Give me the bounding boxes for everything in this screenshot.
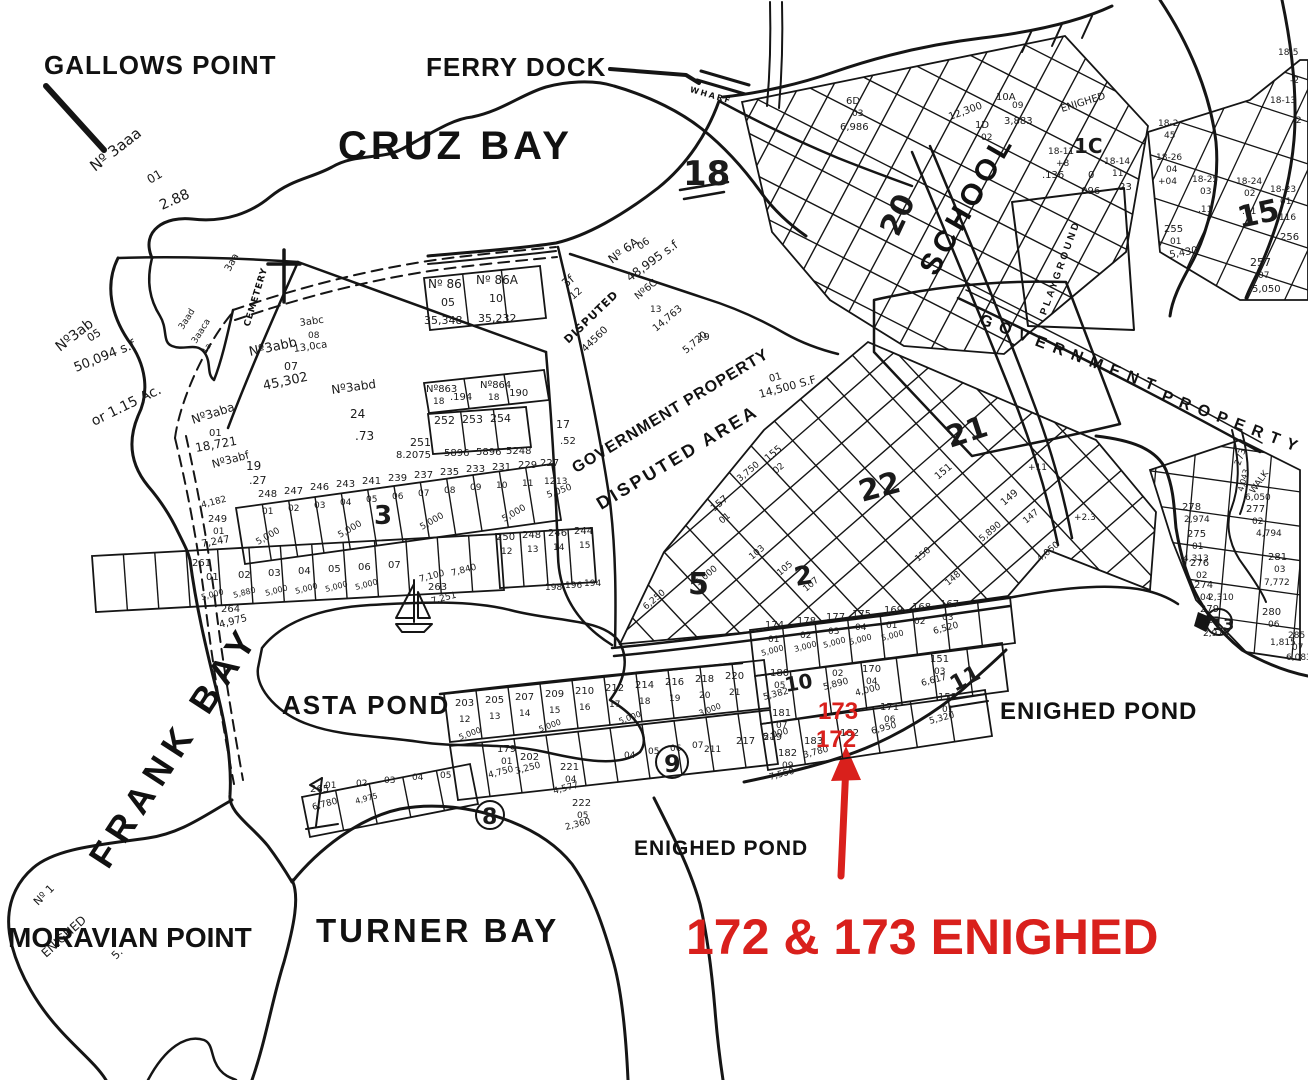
parcel-label: 205 [485, 695, 504, 706]
parcel-label: 194 [584, 579, 601, 589]
parcel-label: 281 [1268, 552, 1287, 563]
parcel-label: 11 [1112, 169, 1123, 179]
parcel-label: 3aa [223, 252, 241, 274]
parcel-label: 216 [665, 677, 684, 688]
parcel-label: 03 [384, 776, 395, 786]
parcel-label: 210 [575, 686, 594, 697]
parcel-label: 5,000 [354, 577, 378, 592]
parcel-label: 170 [862, 664, 881, 675]
parcel-label: 01 [1170, 237, 1181, 247]
district-number: 10 [783, 668, 815, 696]
parcel-label: 18 [433, 397, 445, 407]
cadastral-map: Nº 3aaa012.883aa3aad3aaca1a.Nº3ab0550,09… [0, 0, 1308, 1080]
annotation-172-173-enighed: 172 & 173 ENIGHED [686, 912, 1158, 962]
parcel-label: 17 [556, 418, 570, 431]
parcel-label: 17 [609, 700, 620, 710]
parcel-label: or 1.15 Ac. [89, 382, 164, 430]
parcel-label: 01 [206, 572, 219, 583]
parcel-label: 167 [940, 599, 959, 610]
parcel-label: 09 [470, 483, 482, 493]
parcel-label: 04 [624, 751, 636, 761]
parcel-label: 01 [1192, 542, 1203, 552]
parcel-label: 14 [519, 709, 531, 719]
parcel-label: 02 [914, 617, 925, 627]
parcel-label: 148 [944, 569, 964, 588]
parcel-label: 5896 [476, 447, 501, 458]
parcel-label: 182 [778, 748, 797, 759]
label-turner-bay: TURNER BAY [316, 914, 559, 947]
parcel-label: 01 [262, 507, 273, 517]
label-moravian-point: MORAVIAN POINT [8, 924, 252, 952]
parcel-label: 08 [308, 331, 320, 341]
parcel-label: 10 [496, 481, 508, 491]
parcel-label: 12 [544, 477, 555, 487]
parcel-label: 151 [930, 654, 949, 665]
parcel-label: Nº 1 [31, 882, 57, 908]
parcel-label: 7,772 [1264, 578, 1290, 588]
parcel-label: 203 [455, 698, 474, 709]
parcel-label: 02 [800, 631, 811, 641]
parcel-label: 16 [579, 703, 591, 713]
parcel-label: 07 [1292, 643, 1303, 653]
parcel-label: 45 [1164, 131, 1175, 141]
parcel-label: 2,974 [1184, 515, 1210, 525]
parcel-label: 244 [574, 526, 593, 537]
parcel-label: 5,000 [880, 628, 904, 643]
parcel-172-highlight: 172 [816, 728, 856, 752]
parcel-label: 7,247 [201, 534, 231, 550]
parcel-label: 13 [527, 545, 538, 555]
parcel-label: 04 [1166, 165, 1178, 175]
parcel-label: 277 [1246, 504, 1265, 515]
parcel-label: 03 [268, 568, 281, 579]
parcel-label: 276 [1190, 558, 1209, 569]
parcel-label: 179 [497, 744, 516, 755]
parcel-label: +04 [1158, 177, 1177, 187]
parcel-label: 06 [358, 562, 371, 573]
parcel-label: 3,750 [736, 460, 762, 484]
parcel-label: Nº3abb [248, 335, 299, 360]
parcel-label: 6,617 [920, 673, 947, 689]
parcel-label: 18-26 [1156, 153, 1182, 163]
parcel-label: 174 [765, 620, 784, 631]
parcel-label: 2,310 [1208, 593, 1234, 603]
parcel-label: 227 [540, 458, 559, 469]
parcel-label: 4,750 [487, 764, 515, 780]
parcel-label: 02 [772, 461, 787, 476]
parcel-label: 231 [492, 462, 511, 473]
parcel-label: 5248 [506, 446, 531, 457]
parcel-label: 02 [288, 504, 299, 514]
parcel-label: 18-24 [1236, 177, 1262, 187]
parcel-label: 01 [325, 781, 336, 791]
parcel-label: .11 [1198, 205, 1212, 215]
parcel-label: 264 [221, 604, 240, 615]
parcel-label: .096 [1078, 186, 1100, 197]
parcel-label: 20 [699, 691, 711, 701]
parcel-label: 01 [145, 167, 165, 187]
parcel-label: .73 [355, 429, 374, 443]
parcel-label: 4,577 [552, 781, 579, 797]
parcel-label: 01 [1280, 197, 1291, 207]
parcel-label: .136 [1042, 170, 1064, 181]
parcel-label: 247 [284, 486, 303, 497]
parcel-label: 6,520 [932, 620, 960, 636]
parcel-label: 05 [328, 564, 341, 575]
district-number: 20 [874, 189, 923, 242]
parcel-label: 04 [340, 498, 352, 508]
parcel-label: 03 [1200, 187, 1211, 197]
parcel-label: 03 [1274, 565, 1285, 575]
parcel-label: 18-2 [1158, 119, 1178, 129]
parcel-label: 3aad [177, 307, 197, 331]
parcel-label: 246 [548, 528, 567, 539]
parcel-label: 220 [725, 671, 744, 682]
parcel-label: 212 [605, 683, 624, 694]
parcel-label: 278 [1182, 502, 1201, 513]
parcel-label: 149 [999, 488, 1021, 509]
parcel-label: 06 [1268, 620, 1280, 630]
parcel-label: .52 [560, 436, 576, 447]
parcel-label: 248 [522, 530, 541, 541]
parcel-label: 217 [736, 736, 755, 747]
parcel-label: 2.88 [157, 186, 192, 213]
parcel-label: 11 [522, 479, 533, 489]
parcel-label: 275 [1187, 529, 1206, 540]
parcel-label: 6,780 [311, 796, 339, 812]
parcel-label: Nº3abd [330, 377, 376, 397]
parcel-label: 06 [635, 236, 652, 252]
parcel-label: 5,000 [337, 519, 365, 541]
parcel-label: 181 [772, 708, 791, 719]
parcel-label: 07 [692, 741, 703, 751]
parcel-label: .27 [249, 474, 267, 487]
label-gallows-point: GALLOWS POINT [44, 52, 277, 78]
parcel-label: 7,840 [450, 562, 478, 578]
parcel-label: .23 [1116, 182, 1132, 193]
parcel-label: 4,182 [200, 495, 227, 511]
parcel-label: 151 [933, 462, 955, 483]
parcel-label: 15 [549, 706, 560, 716]
parcel-label: Nº6C [633, 277, 660, 302]
parcel-label: 221 [560, 762, 579, 773]
parcel-label: 207 [515, 692, 534, 703]
district-number: 18 [683, 154, 730, 194]
parcel-label: 14 [553, 543, 565, 553]
label-enighed-pond-bottom: ENIGHED POND [634, 838, 808, 859]
parcel-label: -2 [1290, 76, 1299, 86]
parcel-label: 6,050 [1245, 493, 1271, 503]
parcel-label: 196 [565, 581, 582, 591]
parcel-label: 04 [855, 623, 867, 633]
parcel-label: 177 [826, 612, 845, 623]
parcel-label: +11 [1028, 463, 1047, 473]
parcel-label: 15 [579, 541, 590, 551]
parcel-label: 13,0ca [293, 339, 328, 355]
parcel-label: 12 [501, 547, 512, 557]
parcel-label: 6,083 [1286, 653, 1308, 663]
parcel-label: 10 [489, 292, 503, 305]
parcel-label: 19 [669, 694, 681, 704]
parcel-label: 4,050 [1036, 540, 1062, 564]
parcel-label: 5,890 [822, 676, 850, 692]
parcel-label: 1D [975, 120, 989, 131]
parcel-label: 18-14 [1104, 157, 1130, 167]
parcel-label: 06 [392, 492, 404, 502]
parcel-label: 18 [639, 697, 651, 707]
parcel-label: 248 [258, 489, 277, 500]
district-number: 2 [792, 560, 815, 593]
parcel-label: 13 [650, 305, 661, 315]
parcel-label: 251 [410, 436, 431, 449]
parcel-label: 150 [914, 545, 934, 564]
parcel-label: 256 [1280, 232, 1299, 243]
district-number: 3 [374, 501, 392, 531]
parcel-label: 211 [704, 745, 721, 755]
parcel-label: 18-25 [1192, 175, 1218, 185]
parcel-label: 50,094 s.f [72, 337, 138, 375]
parcel-label: 214 [635, 680, 654, 691]
parcel-label: 169 [884, 605, 903, 616]
parcel-label: +2.3 [1074, 513, 1096, 523]
label-asta-pond: ASTA POND [282, 692, 450, 718]
parcel-label: Nº 3aaa [86, 124, 145, 175]
parcel-label: 07 [388, 560, 401, 571]
parcel-label: 03 [852, 109, 863, 119]
parcel-label: 09 [1012, 101, 1024, 111]
parcel-label: 1a. [200, 340, 214, 355]
parcel-label: 18-13 [1270, 96, 1296, 106]
parcel-label: 155 [763, 444, 785, 465]
district-number: 5 [688, 567, 709, 602]
parcel-label: 241 [362, 476, 381, 487]
parcel-label: 3,883 [1004, 116, 1033, 127]
parcel-label: 5896 [444, 448, 469, 459]
parcel-label: 18 [488, 393, 500, 403]
parcel-label: 05 [648, 747, 659, 757]
parcel-label: 198 [545, 583, 562, 593]
parcel-label: 280 [1262, 607, 1281, 618]
parcel-label: 218 [695, 674, 714, 685]
parcel-label: 171 [880, 702, 899, 713]
parcel-label: 5,000 [848, 632, 872, 647]
parcel-label: 153 [938, 692, 957, 703]
parcel-label: 261 [192, 558, 211, 569]
label-cruz-bay: CRUZ BAY [338, 126, 573, 166]
parcel-label: 04 [298, 566, 311, 577]
parcel-label: 4,794 [1256, 529, 1282, 539]
parcel-label: 8.2075 [396, 450, 431, 461]
parcel-label: 03 [314, 501, 325, 511]
parcel-label: 239 [388, 473, 407, 484]
parcel-label: Nº 86A [476, 273, 519, 287]
parcel-label: 07 [418, 489, 429, 499]
district-number: 9 [664, 750, 681, 778]
parcel-label: 3abc [299, 315, 325, 329]
parcel-label: 257 [1250, 256, 1271, 269]
parcel-label: 274 [1194, 580, 1213, 591]
parcel-label: 21 [729, 688, 740, 698]
parcel-label: 249 [208, 514, 227, 525]
district-number: 13 [1212, 615, 1234, 634]
parcel-label: 6,986 [840, 122, 869, 133]
parcel-label: 263 [428, 582, 447, 593]
parcel-label: 3aaca [190, 317, 213, 345]
parcel-label: 279 [1200, 604, 1219, 615]
parcel-173-highlight: 173 [818, 700, 858, 724]
parcel-label: +8 [1056, 159, 1070, 169]
district-number: 8 [482, 805, 497, 830]
parcel-label: 243 [336, 479, 355, 490]
parcel-label: 0 [1088, 170, 1094, 181]
parcel-label: 5,050 [1252, 284, 1281, 295]
parcel-label: 03 [828, 627, 839, 637]
parcel-label: 3,000 [793, 639, 817, 654]
parcel-label: .194 [450, 392, 472, 403]
parcel-label: 35,232 [478, 312, 517, 325]
parcel-label: 253 [462, 413, 483, 426]
parcel-label: .2 [1293, 116, 1302, 126]
parcel-label: 237 [414, 470, 433, 481]
parcel-label: 2,360 [564, 816, 592, 832]
parcel-label: 13 [489, 712, 500, 722]
parcel-label: 05 [441, 296, 455, 309]
parcel-label: 4,000 [854, 682, 882, 698]
parcel-label: 45,302 [262, 370, 310, 394]
parcel-label: 02 [238, 570, 251, 581]
parcel-label: 14,500 S.F [757, 373, 817, 401]
parcel-label: 255 [1164, 224, 1183, 235]
parcel-label: 209 [545, 689, 564, 700]
parcel-label: .190 [506, 388, 528, 399]
label-enighed-pond-right: ENIGHED POND [1000, 700, 1197, 724]
parcel-label: 5,000 [419, 511, 447, 533]
parcel-label: 5,000 [324, 579, 348, 594]
parcel-label: 05 [440, 771, 451, 781]
district-number: 21 [942, 409, 993, 455]
parcel-label: Nº 6A [606, 234, 643, 266]
parcel-label: 178 [797, 616, 816, 627]
parcel-label: 4,975 [354, 791, 378, 806]
parcel-label: 233 [466, 464, 485, 475]
parcel-label: 168 [912, 602, 931, 613]
parcel-label: Nº 86 [428, 277, 462, 291]
parcel-label: 175 [852, 609, 871, 620]
parcel-label: 285 [1288, 631, 1305, 641]
parcel-label: 12 [459, 715, 470, 725]
parcel-label: 6D [846, 96, 860, 107]
parcel-label: 250 [496, 532, 515, 543]
parcel-label: 5,890 [978, 520, 1004, 544]
parcel-label: 254 [490, 412, 511, 425]
parcel-label: 229 [518, 460, 537, 471]
parcel-label: 5,000 [264, 583, 288, 598]
parcel-label: 222 [572, 798, 591, 809]
parcel-label: 01 [768, 635, 779, 645]
parcel-label: 18-5 [1278, 48, 1298, 58]
parcel-label: 246 [310, 482, 329, 493]
district-number: 1C [1074, 134, 1103, 158]
parcel-label: 24 [350, 407, 365, 421]
label-ferry-dock: FERRY DOCK [426, 54, 606, 80]
parcel-label: 02 [1252, 517, 1263, 527]
parcel-label: 5,000 [760, 643, 784, 658]
parcel-label: 3,250 [514, 760, 542, 776]
parcel-label: 252 [434, 414, 455, 427]
parcel-label: 35,348 [424, 314, 463, 327]
parcel-label: 07 [1258, 271, 1269, 281]
parcel-label: 235 [440, 467, 459, 478]
parcel-label: 02 [356, 779, 367, 789]
parcel-label: 18-11 [1048, 147, 1074, 157]
parcel-label: 5,000 [822, 635, 846, 650]
parcel-label: 04 [412, 773, 424, 783]
parcel-label: 08 [444, 486, 456, 496]
parcel-label: 19 [246, 459, 261, 473]
